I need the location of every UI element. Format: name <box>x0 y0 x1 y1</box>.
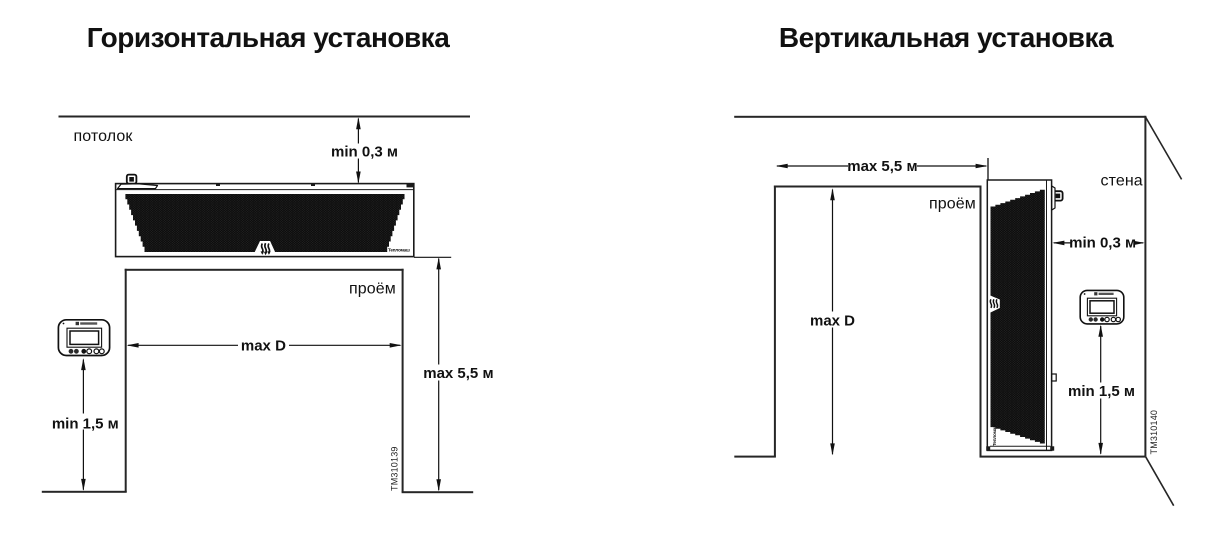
svg-text:min 1,5 м: min 1,5 м <box>1068 383 1135 400</box>
svg-text:min 1,5 м: min 1,5 м <box>52 416 119 433</box>
svg-text:проём: проём <box>349 281 396 298</box>
svg-text:стена: стена <box>1101 173 1143 190</box>
svg-text:потолок: потолок <box>74 128 134 145</box>
svg-text:TM310139: TM310139 <box>390 446 400 491</box>
svg-text:max 5,5 м: max 5,5 м <box>847 158 917 175</box>
svg-text:min 0,3 м: min 0,3 м <box>331 144 398 161</box>
svg-text:max 5,5 м: max 5,5 м <box>423 365 493 382</box>
svg-text:Тепломаш: Тепломаш <box>992 424 997 446</box>
svg-text:max D: max D <box>241 338 286 355</box>
svg-text:Горизонтальная установка: Горизонтальная установка <box>87 22 450 53</box>
svg-text:Тепломаш: Тепломаш <box>388 248 410 253</box>
svg-text:min 0,3 м: min 0,3 м <box>1069 235 1136 252</box>
svg-text:Вертикальная установка: Вертикальная установка <box>779 22 1114 53</box>
svg-text:max D: max D <box>810 313 855 330</box>
svg-text:TM310140: TM310140 <box>1149 410 1159 455</box>
svg-text:проём: проём <box>929 196 976 213</box>
